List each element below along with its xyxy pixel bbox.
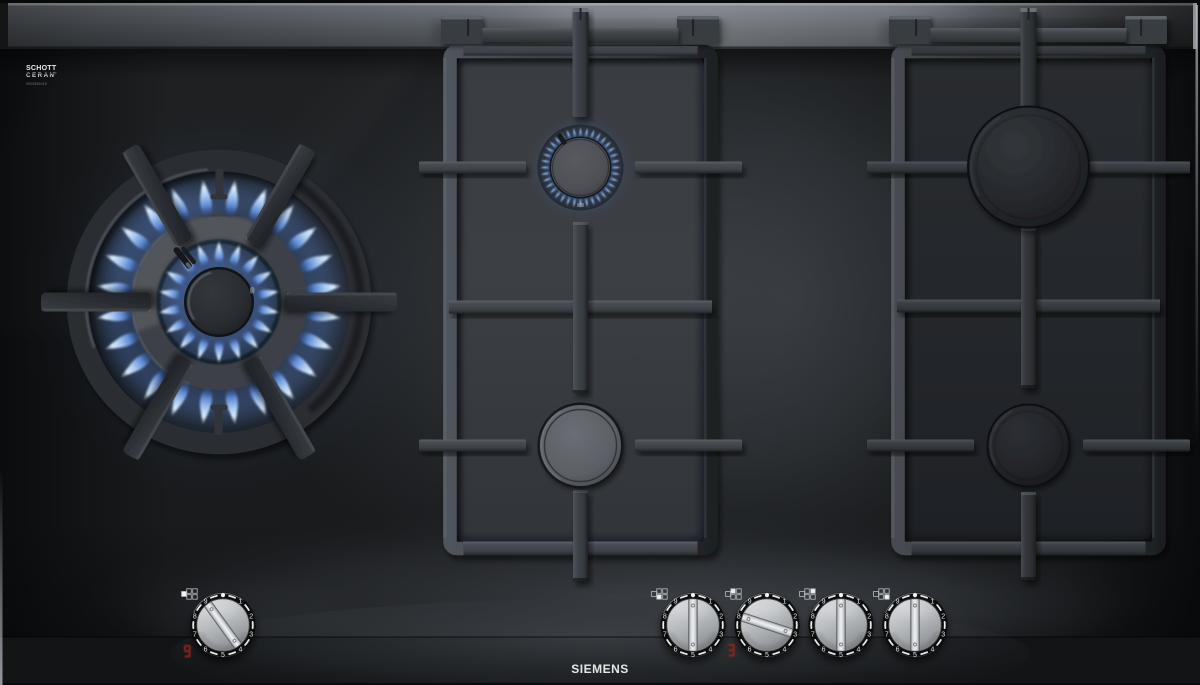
svg-text:SCHOTT: SCHOTT [26, 64, 57, 72]
svg-text:SIEMENS: SIEMENS [571, 662, 629, 676]
svg-text:9000896049: 9000896049 [26, 82, 47, 86]
svg-text:CERAN: CERAN [26, 72, 56, 79]
